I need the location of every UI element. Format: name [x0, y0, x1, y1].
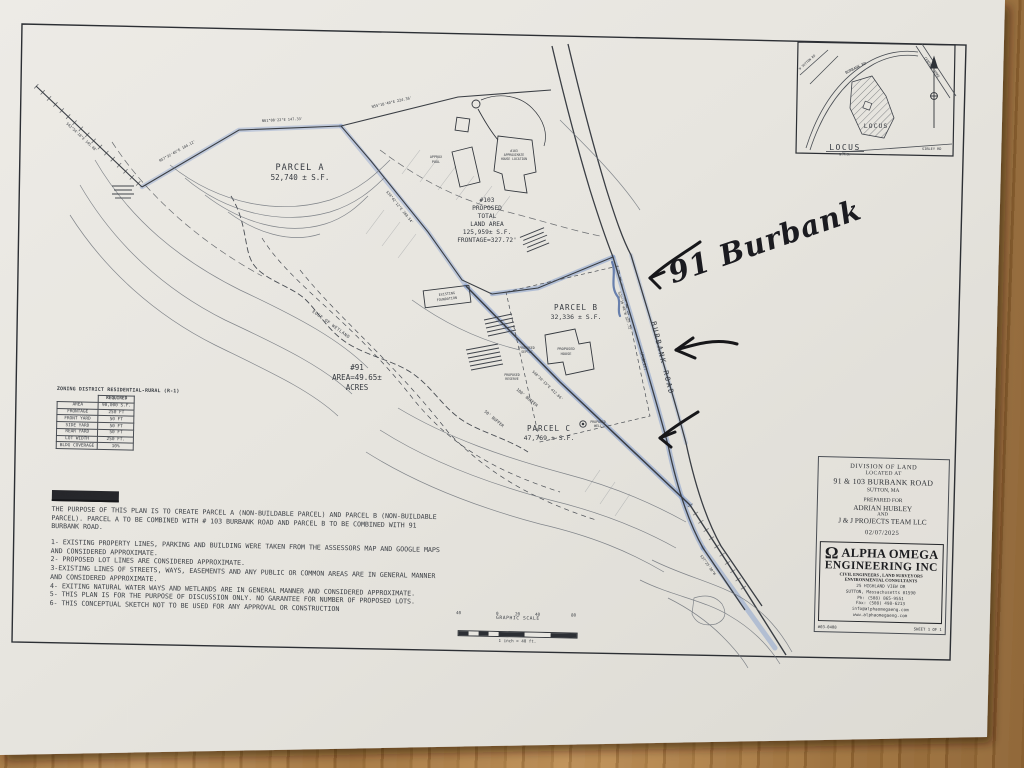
sheet-number: SHEET 1 OF 1 [914, 626, 942, 632]
title-line: J & J PROJECTS TEAM LLC [819, 516, 945, 527]
lot91-line2: AREA=49.65± [332, 373, 382, 382]
parcel-c-title: PARCEL C [527, 424, 571, 433]
parcel-a-title: PARCEL A [276, 163, 325, 173]
zoning-table: REQUIRED AREA90,000 S.F. FRONTAGE250 FT … [56, 394, 136, 451]
graphic-scale-numbers: 40 0 20 40 80 [459, 620, 577, 627]
lot103-line2: PROPOSED [472, 205, 502, 212]
pool-label2: POOL [432, 160, 440, 164]
notes-purpose-paragraph: THE PURPOSE OF THIS PLAN IS TO CREATE PA… [51, 505, 445, 539]
lot103-line6: FRONTAGE=327.72' [457, 237, 517, 244]
proposed-reserve-label2: RESERVE [505, 377, 519, 381]
plan-sheet-drawing: PARCEL A 52,740 ± S.F. #103 PROPOSED TOT… [0, 0, 1024, 768]
scale-tick: 0 [496, 611, 499, 616]
parcel-b-area: 32,336 ± S.F. [551, 313, 602, 321]
locus-road-sibley: SIBLEY RD [922, 147, 941, 151]
scale-tick: 80 [571, 612, 576, 617]
photo-of-site-plan: PARCEL A 52,740 ± S.F. #103 PROPOSED TOT… [0, 0, 1024, 768]
parcel-c-area: 47,769 ± S.F. [524, 434, 575, 442]
lot103-line4: LAND AREA [470, 221, 504, 228]
pool-label1: APPROX [430, 155, 443, 159]
parcel-b-title: PARCEL B [554, 303, 598, 312]
scale-tick: 40 [535, 612, 540, 617]
proposed-well-label2: WELL [594, 424, 602, 428]
graphic-scale: GRAPHIC SCALE 40 0 20 40 80 1 inch = 40 … [451, 615, 584, 645]
scale-tick: 40 [456, 610, 461, 615]
firm-logo-icon: Ω [825, 546, 839, 560]
notes-block: CONCEPTUAL PLAN THE PURPOSE OF THIS PLAN… [50, 490, 446, 616]
parcel-a-area: 52,740 ± S.F. [271, 173, 330, 182]
lot103-line5: 125,959± S.F. [463, 229, 511, 236]
locus-inside-label: LOCUS [864, 122, 889, 130]
locus-nts: N.T.S. [839, 153, 851, 157]
locus-title: LOCUS [829, 143, 861, 152]
house-103-label3: HOUSE LOCATION [501, 157, 527, 161]
lot103-line3: TOTAL [478, 213, 497, 220]
lot91-line3: ACRES [346, 383, 369, 392]
proposed-septic-label2: SEPTIC [521, 350, 533, 354]
plan-date: 02/07/2025 [819, 528, 945, 538]
lot103-line1: #103 [480, 197, 495, 204]
firm-stamp-box: Ω ALPHA OMEGA ENGINEERING INC CIVIL ENGI… [818, 541, 944, 624]
zoning-table-block: ZONING DISTRICT RESIDENTIAL-RURAL (R-1) … [56, 386, 180, 452]
job-number: #03-0408 [818, 624, 837, 629]
title-block-footer: #03-0408 SHEET 1 OF 1 [815, 623, 945, 634]
zoning-title: ZONING DISTRICT RESIDENTIAL-RURAL (R-1) [57, 386, 180, 395]
proposed-well-dot [582, 423, 584, 425]
lot91-line1: #91 [350, 363, 364, 372]
title-block: DIVISION OF LAND LOCATED AT 91 & 103 BUR… [814, 456, 950, 635]
title-block-text: DIVISION OF LAND LOCATED AT 91 & 103 BUR… [817, 457, 949, 542]
notes-title: CONCEPTUAL PLAN [52, 490, 120, 502]
proposed-house-label2: HOUSE [561, 352, 572, 356]
proposed-house-label1: PROPOSED [557, 347, 574, 351]
table-row: BLDG COVERAGE10% [56, 442, 134, 450]
scale-tick: 20 [515, 611, 520, 616]
